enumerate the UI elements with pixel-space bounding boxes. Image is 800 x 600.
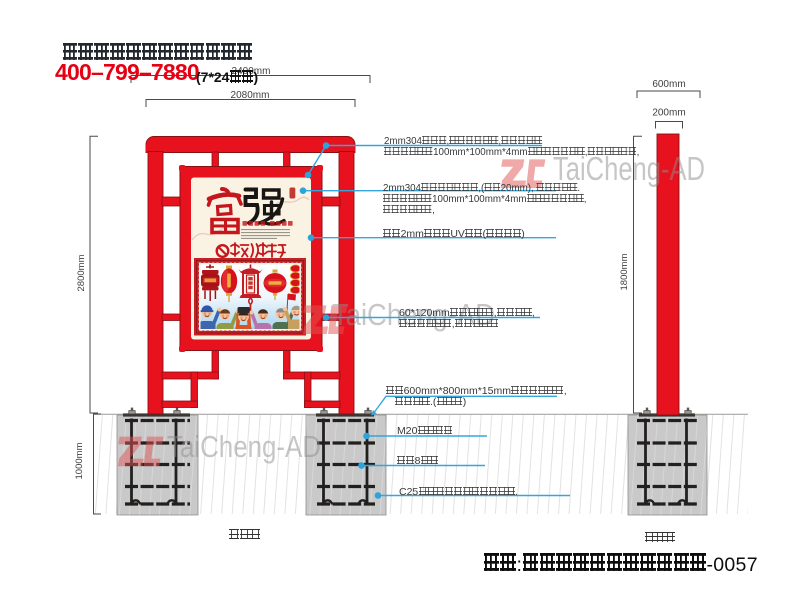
svg-text:1000mm: 1000mm	[74, 442, 85, 479]
svg-text:2800mm: 2800mm	[76, 254, 87, 291]
svg-text:1800mm: 1800mm	[619, 253, 630, 290]
svg-text:200mm: 200mm	[652, 108, 685, 119]
svg-text:600mm: 600mm	[652, 79, 685, 90]
svg-text:TaiCheng-AD: TaiCheng-AD	[167, 429, 321, 464]
svg-text:2080mm: 2080mm	[231, 90, 270, 101]
